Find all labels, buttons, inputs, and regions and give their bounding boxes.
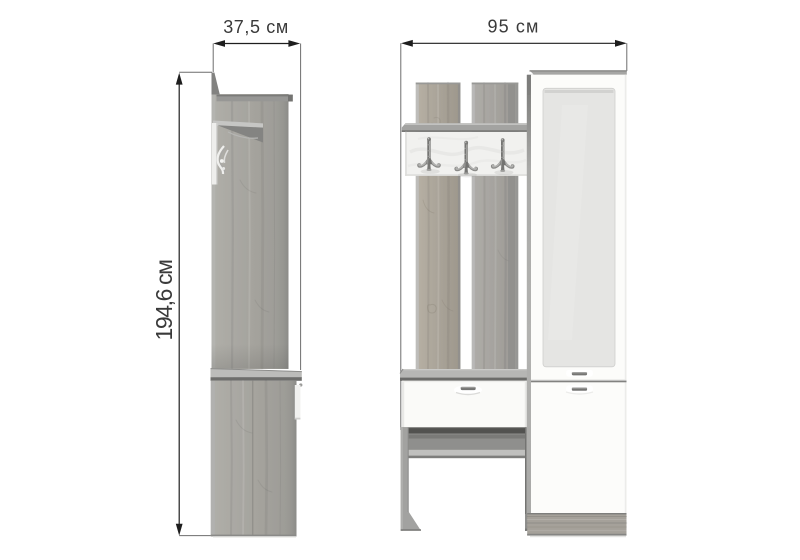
svg-text:37,5 см: 37,5 см: [223, 17, 289, 37]
svg-text:194,6 см: 194,6 см: [151, 260, 177, 341]
svg-text:95 см: 95 см: [488, 17, 540, 37]
